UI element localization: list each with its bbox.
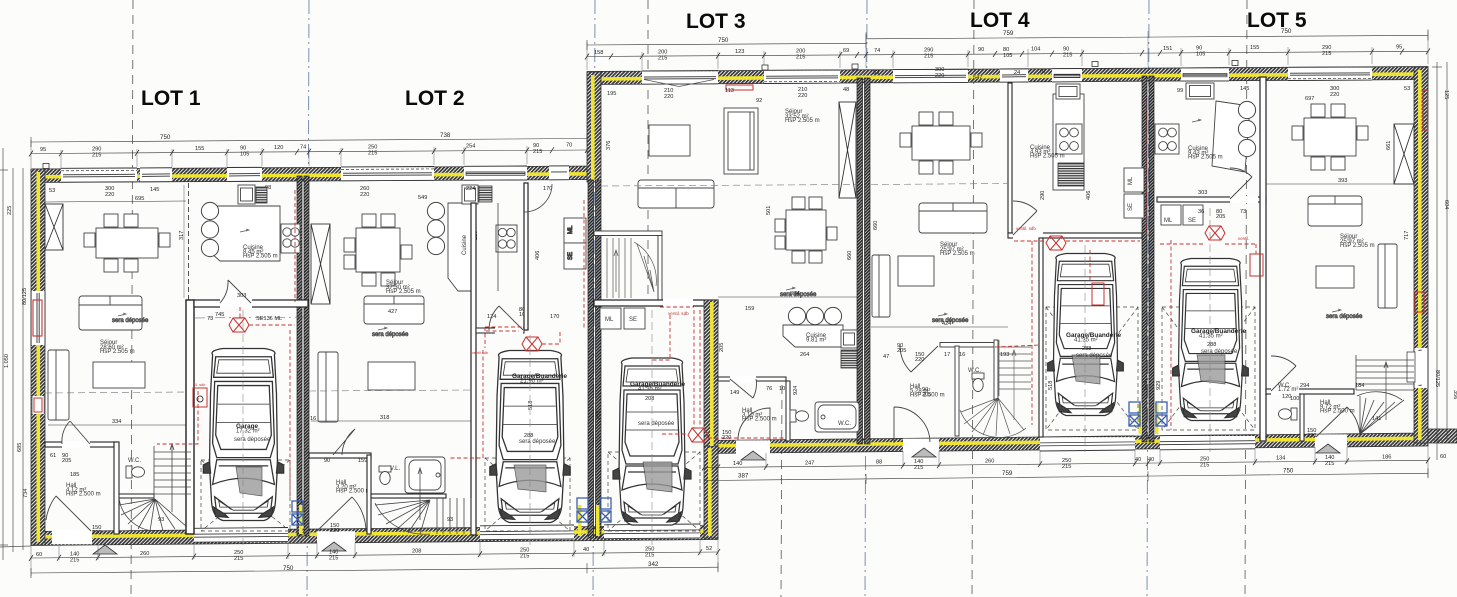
svg-text:48: 48 xyxy=(843,87,849,93)
svg-text:518: 518 xyxy=(1048,381,1054,390)
svg-text:225: 225 xyxy=(7,206,13,215)
svg-text:16: 16 xyxy=(959,352,965,358)
svg-text:HsP 2.500 m: HsP 2.500 m xyxy=(910,393,945,399)
svg-text:929: 929 xyxy=(1156,381,1162,390)
svg-text:sera déposée: sera déposée xyxy=(638,421,675,427)
svg-text:53: 53 xyxy=(1404,86,1410,92)
svg-text:195: 195 xyxy=(607,91,616,97)
svg-text:sera déposée: sera déposée xyxy=(519,439,556,445)
svg-text:74: 74 xyxy=(300,145,306,151)
svg-text:268: 268 xyxy=(596,411,602,420)
svg-text:17: 17 xyxy=(944,352,950,358)
svg-text:80/125: 80/125 xyxy=(22,288,28,305)
svg-text:41.35 m²: 41.35 m² xyxy=(638,387,662,393)
svg-text:HsP 2.500 m: HsP 2.500 m xyxy=(336,489,371,495)
svg-text:sera déposée: sera déposée xyxy=(1326,314,1363,320)
svg-text:95: 95 xyxy=(1396,44,1402,50)
svg-text:60: 60 xyxy=(1440,454,1446,460)
svg-text:220: 220 xyxy=(1330,92,1339,98)
svg-text:734: 734 xyxy=(23,489,29,498)
svg-text:215: 215 xyxy=(329,555,338,561)
svg-text:750: 750 xyxy=(718,37,729,44)
svg-text:76: 76 xyxy=(766,386,772,392)
svg-text:254: 254 xyxy=(466,144,475,150)
svg-text:ML: ML xyxy=(1128,176,1134,185)
svg-text:61: 61 xyxy=(50,453,56,459)
svg-text:215: 215 xyxy=(1325,461,1334,467)
svg-text:215: 215 xyxy=(658,56,667,62)
svg-text:145: 145 xyxy=(150,187,159,193)
svg-text:215: 215 xyxy=(520,554,529,560)
svg-text:149: 149 xyxy=(730,390,739,396)
svg-text:406: 406 xyxy=(535,251,541,260)
svg-text:LOT 4: LOT 4 xyxy=(970,9,1030,32)
svg-text:36: 36 xyxy=(1198,209,1204,215)
svg-text:661: 661 xyxy=(1386,141,1392,150)
svg-text:247: 247 xyxy=(805,460,814,466)
svg-text:SE136 ML: SE136 ML xyxy=(256,316,282,322)
svg-text:LOT 2: LOT 2 xyxy=(405,87,465,110)
svg-text:750: 750 xyxy=(283,565,294,572)
svg-text:W.C.: W.C. xyxy=(838,421,851,427)
svg-text:ML: ML xyxy=(1164,218,1173,224)
svg-text:V.L.: V.L. xyxy=(390,466,400,472)
svg-text:70: 70 xyxy=(566,143,572,149)
svg-text:750: 750 xyxy=(160,134,171,141)
svg-text:215: 215 xyxy=(368,151,377,157)
svg-text:387: 387 xyxy=(738,473,749,480)
svg-text:303: 303 xyxy=(237,293,246,299)
svg-text:215: 215 xyxy=(1063,52,1072,58)
svg-text:356: 356 xyxy=(1452,390,1457,399)
svg-text:e/L sdb: e/L sdb xyxy=(193,383,205,387)
svg-text:80/125: 80/125 xyxy=(1434,370,1440,387)
svg-text:73: 73 xyxy=(207,316,213,322)
svg-text:90: 90 xyxy=(978,47,984,53)
svg-text:17.32 m²: 17.32 m² xyxy=(236,429,260,435)
svg-text:21.90 m²: 21.90 m² xyxy=(520,379,544,385)
svg-text:sera déposée: sera déposée xyxy=(1201,349,1238,355)
svg-text:288: 288 xyxy=(1082,346,1091,352)
svg-text:424: 424 xyxy=(942,321,951,327)
svg-text:HsP 2.505 m: HsP 2.505 m xyxy=(386,289,421,295)
svg-text:208: 208 xyxy=(412,549,421,555)
svg-text:215: 215 xyxy=(1200,462,1209,468)
svg-text:ventil. sdb: ventil. sdb xyxy=(1016,226,1036,231)
svg-text:738: 738 xyxy=(440,132,451,139)
svg-text:140: 140 xyxy=(733,461,742,467)
svg-text:260: 260 xyxy=(140,551,149,557)
svg-text:604: 604 xyxy=(1443,200,1449,209)
svg-text:208: 208 xyxy=(645,396,654,402)
svg-text:40: 40 xyxy=(583,547,589,553)
svg-text:215: 215 xyxy=(645,553,654,559)
svg-text:215: 215 xyxy=(914,465,923,471)
svg-text:745: 745 xyxy=(215,312,224,318)
svg-text:141: 141 xyxy=(1372,416,1381,422)
svg-text:155: 155 xyxy=(1250,45,1259,51)
svg-text:HsP 2.505 m: HsP 2.505 m xyxy=(785,118,820,124)
svg-text:924: 924 xyxy=(793,386,799,395)
svg-text:41.35 m²: 41.35 m² xyxy=(1199,334,1223,340)
svg-text:123: 123 xyxy=(735,49,744,55)
svg-text:220: 220 xyxy=(92,530,101,536)
svg-text:1.72 m²: 1.72 m² xyxy=(1278,387,1298,393)
svg-text:155: 155 xyxy=(195,146,204,152)
svg-text:660: 660 xyxy=(873,221,879,230)
svg-text:40: 40 xyxy=(1135,457,1141,463)
svg-text:224: 224 xyxy=(466,186,475,192)
svg-text:sera déposée: sera déposée xyxy=(112,318,149,324)
svg-text:145: 145 xyxy=(1240,86,1249,92)
svg-text:9.81 m²: 9.81 m² xyxy=(806,338,826,344)
svg-text:264: 264 xyxy=(800,352,809,358)
svg-text:342: 342 xyxy=(648,561,659,568)
svg-text:125: 125 xyxy=(1443,90,1449,99)
svg-text:ML: ML xyxy=(605,317,614,323)
svg-text:518: 518 xyxy=(528,401,534,410)
svg-text:290: 290 xyxy=(1040,191,1046,200)
svg-text:SE: SE xyxy=(1188,218,1196,224)
svg-text:92: 92 xyxy=(756,98,762,104)
svg-text:ventil. sdb: ventil. sdb xyxy=(668,311,689,316)
svg-text:HsP 2.505 m: HsP 2.505 m xyxy=(100,349,135,355)
svg-text:70: 70 xyxy=(1039,69,1045,75)
svg-text:660: 660 xyxy=(847,251,853,260)
svg-text:ventil sdb: ventil sdb xyxy=(472,351,488,355)
svg-text:220: 220 xyxy=(935,73,944,79)
svg-text:158: 158 xyxy=(594,50,603,56)
svg-text:406: 406 xyxy=(1086,191,1092,200)
svg-text:LOT 3: LOT 3 xyxy=(686,10,746,33)
svg-text:193: 193 xyxy=(1000,352,1009,358)
svg-text:60: 60 xyxy=(36,552,42,558)
svg-text:260: 260 xyxy=(985,459,994,465)
svg-text:220: 220 xyxy=(798,93,807,99)
svg-text:53: 53 xyxy=(873,70,879,76)
svg-text:W.C.: W.C. xyxy=(128,458,141,464)
svg-text:ventil.: ventil. xyxy=(1238,236,1249,241)
svg-text:HsP 2.505 m: HsP 2.505 m xyxy=(1188,155,1223,161)
svg-text:105: 105 xyxy=(1196,52,1205,58)
svg-text:LOT 1: LOT 1 xyxy=(141,87,201,110)
svg-text:759: 759 xyxy=(1002,470,1013,477)
svg-text:SE: SE xyxy=(568,252,574,260)
svg-text:215: 215 xyxy=(70,558,79,564)
svg-text:134: 134 xyxy=(1276,456,1285,462)
svg-text:10: 10 xyxy=(779,386,785,392)
svg-text:288: 288 xyxy=(1207,342,1216,348)
svg-text:159: 159 xyxy=(745,306,754,312)
svg-text:750: 750 xyxy=(1283,468,1294,475)
svg-text:SE: SE xyxy=(1128,203,1134,211)
svg-text:427: 427 xyxy=(388,309,397,315)
svg-text:99: 99 xyxy=(1177,88,1183,94)
svg-text:40: 40 xyxy=(1148,457,1154,463)
svg-text:69: 69 xyxy=(843,48,849,54)
svg-text:184: 184 xyxy=(1355,383,1364,389)
svg-text:sera déposée: sera déposée xyxy=(372,332,409,338)
svg-text:sera déposée: sera déposée xyxy=(234,437,271,443)
svg-text:52: 52 xyxy=(706,546,712,552)
svg-text:205: 205 xyxy=(1216,214,1225,220)
svg-text:697: 697 xyxy=(1305,96,1314,102)
svg-text:93: 93 xyxy=(158,517,164,523)
svg-text:205: 205 xyxy=(719,343,725,352)
svg-text:318: 318 xyxy=(380,415,389,421)
svg-text:393: 393 xyxy=(1338,178,1347,184)
svg-text:549: 549 xyxy=(418,195,427,201)
svg-text:sera déposée: sera déposée xyxy=(1076,353,1113,359)
svg-text:205: 205 xyxy=(897,348,906,354)
svg-text:HsP 2.505 m: HsP 2.505 m xyxy=(940,251,975,257)
svg-text:159: 159 xyxy=(358,458,367,464)
svg-text:215: 215 xyxy=(234,556,243,562)
svg-text:215: 215 xyxy=(796,55,805,61)
svg-text:74: 74 xyxy=(874,48,880,54)
svg-text:105: 105 xyxy=(240,152,249,158)
svg-text:113: 113 xyxy=(725,88,734,94)
svg-text:220: 220 xyxy=(360,192,369,198)
svg-text:LOT 5: LOT 5 xyxy=(1247,9,1307,32)
svg-text:685: 685 xyxy=(17,443,23,452)
svg-text:W.C.: W.C. xyxy=(968,368,981,374)
svg-text:215: 215 xyxy=(92,153,101,159)
svg-text:47: 47 xyxy=(883,354,889,360)
svg-text:88: 88 xyxy=(876,460,882,466)
svg-text:294: 294 xyxy=(1300,383,1309,389)
svg-text:95: 95 xyxy=(40,147,46,153)
svg-text:215: 215 xyxy=(1322,51,1331,57)
svg-text:215: 215 xyxy=(533,149,542,155)
svg-text:100: 100 xyxy=(1290,396,1299,402)
svg-text:303: 303 xyxy=(1198,190,1207,196)
svg-text:186: 186 xyxy=(1382,455,1391,461)
svg-text:1.050: 1.050 xyxy=(4,354,10,368)
svg-text:HsP 2.500 m: HsP 2.500 m xyxy=(66,492,101,498)
svg-text:317: 317 xyxy=(179,231,185,240)
svg-text:547: 547 xyxy=(973,75,982,81)
svg-text:924: 924 xyxy=(1143,381,1149,390)
svg-text:185: 185 xyxy=(70,472,79,478)
svg-text:104: 104 xyxy=(1031,47,1040,53)
svg-text:HsP 2.505 m: HsP 2.505 m xyxy=(1030,154,1065,160)
svg-text:ML: ML xyxy=(568,225,574,234)
svg-text:215: 215 xyxy=(924,53,933,59)
svg-text:SE: SE xyxy=(629,317,637,323)
svg-text:105: 105 xyxy=(1003,53,1012,59)
svg-text:120: 120 xyxy=(1282,394,1291,400)
svg-text:93: 93 xyxy=(447,517,453,523)
svg-text:220: 220 xyxy=(1307,433,1316,439)
svg-text:220: 220 xyxy=(105,192,114,198)
svg-text:717: 717 xyxy=(1404,231,1410,240)
svg-text:HsP 2.505 m: HsP 2.505 m xyxy=(243,254,278,260)
svg-text:394: 394 xyxy=(790,291,799,297)
svg-text:220: 220 xyxy=(330,528,339,534)
svg-text:334: 334 xyxy=(112,419,121,425)
svg-text:501: 501 xyxy=(766,206,772,215)
svg-text:24: 24 xyxy=(1014,70,1020,76)
svg-text:73: 73 xyxy=(1240,209,1246,215)
svg-text:53: 53 xyxy=(49,188,55,194)
svg-text:220: 220 xyxy=(915,357,924,363)
svg-text:205: 205 xyxy=(62,458,71,464)
svg-text:Cuisine: Cuisine xyxy=(462,234,468,255)
svg-text:120: 120 xyxy=(274,145,283,151)
svg-text:376: 376 xyxy=(606,141,612,150)
svg-text:41.35 m²: 41.35 m² xyxy=(1074,338,1098,344)
svg-text:90: 90 xyxy=(324,458,330,464)
svg-text:170: 170 xyxy=(550,314,559,320)
svg-text:220: 220 xyxy=(664,94,673,100)
svg-text:151: 151 xyxy=(1163,46,1172,52)
svg-text:HsP 2.505 m: HsP 2.505 m xyxy=(1340,243,1375,249)
svg-text:215: 215 xyxy=(1062,464,1071,470)
